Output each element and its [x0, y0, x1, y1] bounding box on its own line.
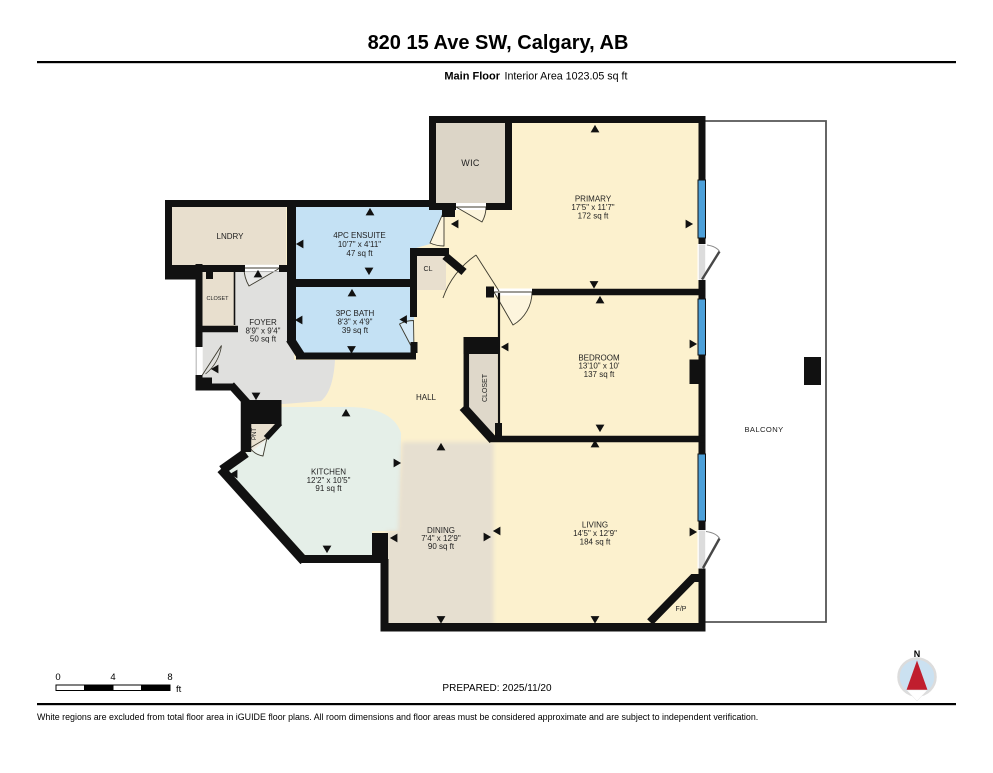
svg-text:172 sq ft: 172 sq ft	[578, 212, 609, 221]
svg-text:PNT: PNT	[252, 428, 258, 440]
svg-text:F/P: F/P	[676, 606, 687, 613]
svg-text:Main Floor: Main Floor	[444, 71, 500, 83]
svg-text:CL: CL	[424, 266, 433, 273]
svg-text:BALCONY: BALCONY	[744, 425, 783, 434]
svg-text:137 sq ft: 137 sq ft	[584, 370, 615, 379]
svg-text:39 sq ft: 39 sq ft	[342, 326, 369, 335]
svg-text:LNDRY: LNDRY	[217, 232, 245, 241]
svg-text:4: 4	[110, 672, 115, 683]
svg-text:10'7" x 4'11": 10'7" x 4'11"	[338, 240, 381, 249]
svg-text:4PC ENSUITE: 4PC ENSUITE	[333, 231, 385, 240]
svg-text:90 sq ft: 90 sq ft	[428, 542, 455, 551]
svg-text:820 15 Ave SW, Calgary, AB: 820 15 Ave SW, Calgary, AB	[368, 32, 629, 54]
svg-text:91 sq ft: 91 sq ft	[315, 484, 342, 493]
svg-text:White regions are excluded fro: White regions are excluded from total fl…	[37, 712, 758, 722]
svg-text:8: 8	[167, 672, 172, 683]
svg-text:CLOSET: CLOSET	[206, 296, 229, 302]
svg-text:47 sq ft: 47 sq ft	[346, 249, 373, 258]
svg-text:0: 0	[55, 672, 60, 683]
svg-text:PREPARED: 2025/11/20: PREPARED: 2025/11/20	[442, 683, 552, 694]
svg-text:Interior Area 1023.05 sq ft: Interior Area 1023.05 sq ft	[505, 71, 628, 83]
svg-text:WIC: WIC	[461, 158, 480, 168]
svg-text:ft: ft	[176, 684, 182, 695]
svg-text:184 sq ft: 184 sq ft	[580, 538, 611, 547]
svg-text:CLOSET: CLOSET	[482, 373, 489, 402]
svg-text:50 sq ft: 50 sq ft	[250, 335, 277, 344]
svg-text:HALL: HALL	[416, 393, 437, 402]
